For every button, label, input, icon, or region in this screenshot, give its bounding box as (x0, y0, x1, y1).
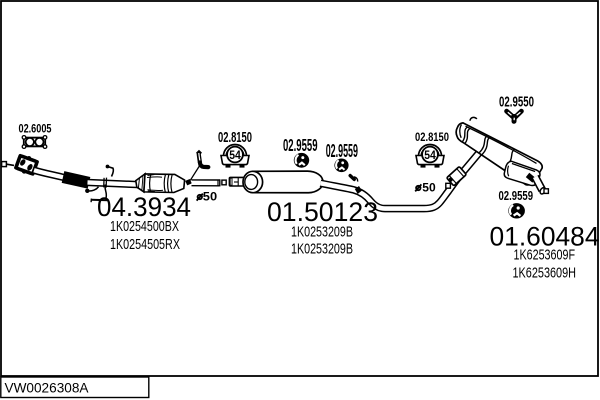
svg-text:01.50123: 01.50123 (267, 197, 378, 227)
svg-text:02.9559: 02.9559 (326, 141, 358, 161)
svg-text:02.8150: 02.8150 (218, 130, 252, 146)
svg-text:02.6005: 02.6005 (19, 121, 52, 135)
svg-text:1K6253609H: 1K6253609H (513, 265, 577, 282)
svg-text:1K0253209B: 1K0253209B (291, 224, 353, 241)
svg-text:50: 50 (422, 180, 436, 194)
svg-text:VW0026308A: VW0026308A (5, 380, 90, 396)
svg-text:1K6253609F: 1K6253609F (514, 247, 576, 264)
svg-text:02.8150: 02.8150 (415, 130, 449, 144)
svg-text:02.9550: 02.9550 (499, 94, 534, 110)
svg-text:54: 54 (229, 150, 241, 162)
svg-text:1K0254505RX: 1K0254505RX (110, 236, 180, 253)
svg-text:54: 54 (424, 150, 436, 162)
svg-text:50: 50 (203, 189, 218, 203)
svg-text:02.9559: 02.9559 (283, 135, 318, 155)
svg-text:1K0253209B: 1K0253209B (291, 241, 353, 258)
svg-text:02.9559: 02.9559 (499, 189, 534, 203)
svg-text:1K0254500BX: 1K0254500BX (110, 218, 179, 235)
